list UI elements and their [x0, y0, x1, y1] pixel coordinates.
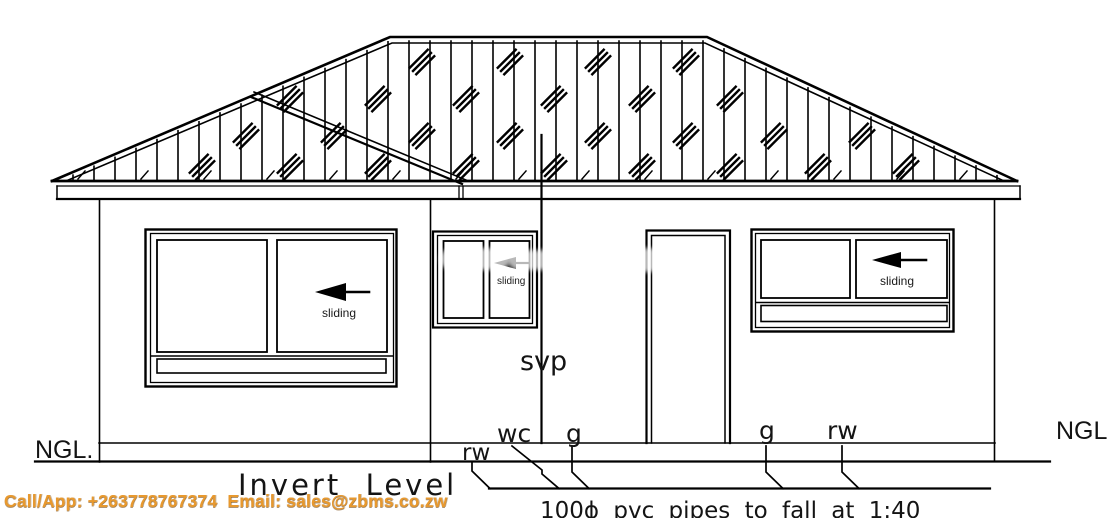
pipe-note-label: 100ϕ pvc pipes to fall at 1:40	[540, 500, 920, 518]
gully-drop-right	[766, 446, 783, 489]
sliding-label-right-window: sliding	[880, 275, 914, 287]
roof-hatch-marks	[190, 50, 919, 180]
gully-label-left: g	[566, 421, 582, 446]
roof	[52, 37, 1020, 199]
elevation-drawing-canvas: NGL. NGL svp wc g g rw rw Invert Level 1…	[0, 0, 1108, 518]
rainwater-label-right: rw	[827, 418, 858, 443]
ngl-label-right: NGL	[1056, 419, 1107, 444]
rw-drop-right	[842, 446, 859, 489]
faded-watermark-smudge	[596, 248, 662, 272]
faded-watermark-smudge	[664, 252, 704, 270]
sliding-label-middle-window: sliding	[497, 277, 525, 287]
window-right-sill	[761, 306, 947, 322]
svp-label: svp	[520, 348, 567, 375]
wc-drop	[512, 446, 559, 489]
contact-watermark: Call/App: +263778767374 Email: sales@zbm…	[4, 493, 447, 511]
sliding-label-left-window: sliding	[322, 307, 356, 319]
ngl-label-left: NGL.	[35, 438, 93, 463]
window-left	[146, 230, 397, 387]
wc-label: wc	[497, 421, 531, 446]
faded-watermark-smudge	[508, 250, 570, 270]
window-right	[752, 230, 954, 332]
roof-battens	[73, 41, 997, 180]
sliding-arrow-left-window	[315, 283, 369, 301]
window-left-sill	[157, 359, 386, 373]
roof-fascia	[52, 181, 1020, 199]
sliding-arrow-right-window	[872, 252, 926, 268]
faded-watermark-smudge	[440, 248, 510, 270]
rainwater-label-left: rw	[462, 442, 490, 465]
gully-label-right: g	[759, 418, 775, 443]
gully-drop-left	[572, 446, 589, 489]
roof-eave-ticks	[78, 171, 967, 179]
